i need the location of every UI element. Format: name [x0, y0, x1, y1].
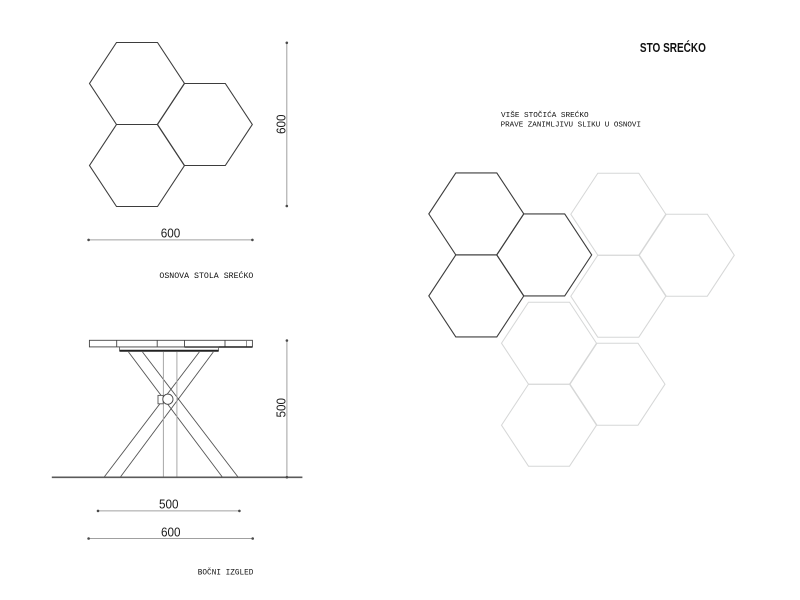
svg-text:600: 600: [161, 227, 181, 241]
svg-text:OSNOVA STOLA SREĆKO: OSNOVA STOLA SREĆKO: [159, 270, 253, 281]
svg-text:600: 600: [161, 526, 181, 540]
svg-text:PRAVE ZANIMLJIVU SLIKU U OSNOV: PRAVE ZANIMLJIVU SLIKU U OSNOVI: [501, 122, 641, 130]
svg-text:VIŠE STOČIĆA SREĆKO: VIŠE STOČIĆA SREĆKO: [501, 110, 589, 120]
svg-text:500: 500: [275, 398, 289, 418]
svg-text:500: 500: [159, 498, 179, 512]
svg-text:STO SREĆKO: STO SREĆKO: [640, 40, 706, 55]
svg-text:600: 600: [275, 114, 289, 134]
svg-text:BOČNI IZGLED: BOČNI IZGLED: [198, 567, 254, 577]
